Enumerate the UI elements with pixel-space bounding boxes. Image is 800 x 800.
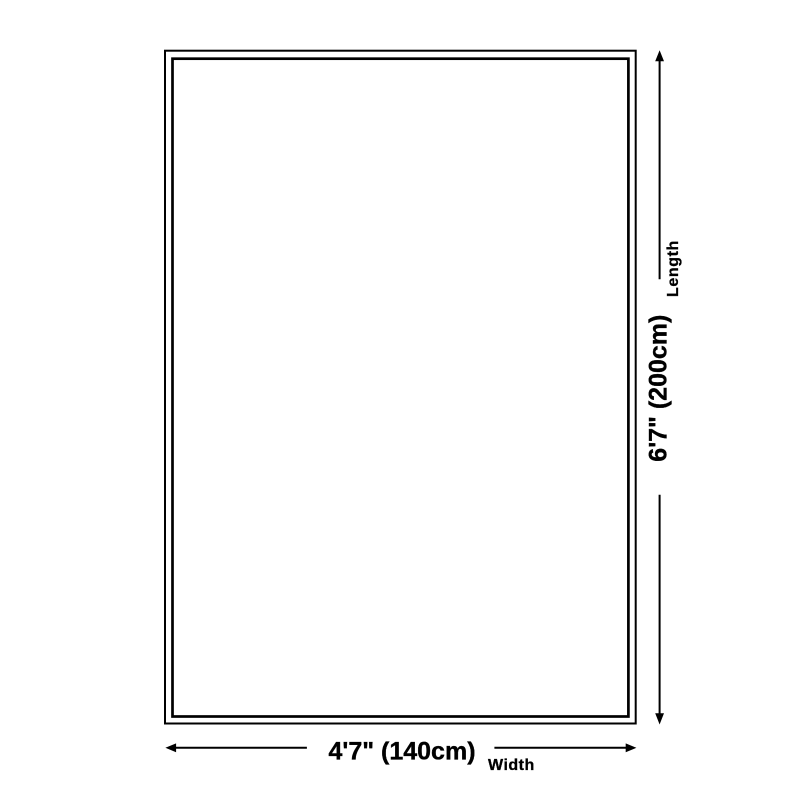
svg-text:Length: Length <box>665 240 682 297</box>
svg-text:Width: Width <box>488 757 535 774</box>
svg-text:6'7" (200cm): 6'7" (200cm) <box>645 315 673 462</box>
svg-text:4'7" (140cm): 4'7" (140cm) <box>328 738 475 766</box>
